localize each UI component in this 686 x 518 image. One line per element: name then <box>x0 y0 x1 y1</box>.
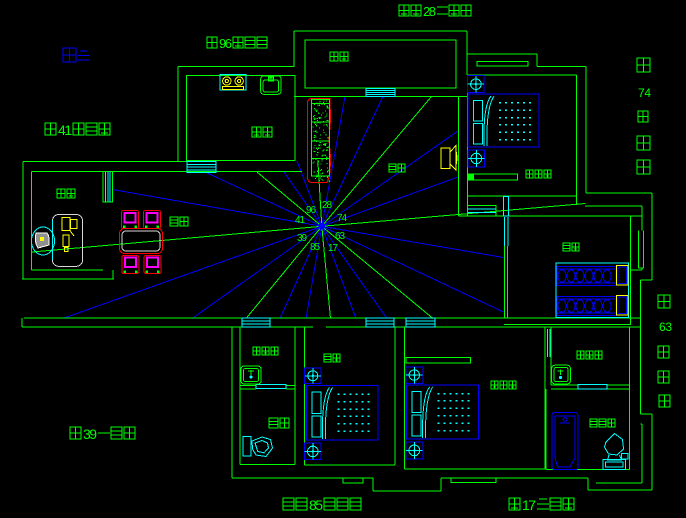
svg-text:28: 28 <box>423 4 436 19</box>
svg-text:39: 39 <box>297 233 307 244</box>
svg-text:63: 63 <box>335 231 345 242</box>
svg-text:96: 96 <box>219 36 232 51</box>
svg-text:96: 96 <box>306 205 316 216</box>
svg-text:63: 63 <box>659 320 672 334</box>
svg-text:85: 85 <box>310 242 320 253</box>
svg-text:28: 28 <box>322 200 332 211</box>
svg-text:85: 85 <box>309 497 323 513</box>
svg-text:41: 41 <box>58 122 72 138</box>
svg-text:74: 74 <box>638 86 651 100</box>
svg-text:41: 41 <box>295 215 305 226</box>
svg-text:17: 17 <box>328 243 338 254</box>
svg-text:39: 39 <box>83 426 97 442</box>
svg-text:17: 17 <box>522 497 536 513</box>
svg-text:74: 74 <box>337 213 347 224</box>
